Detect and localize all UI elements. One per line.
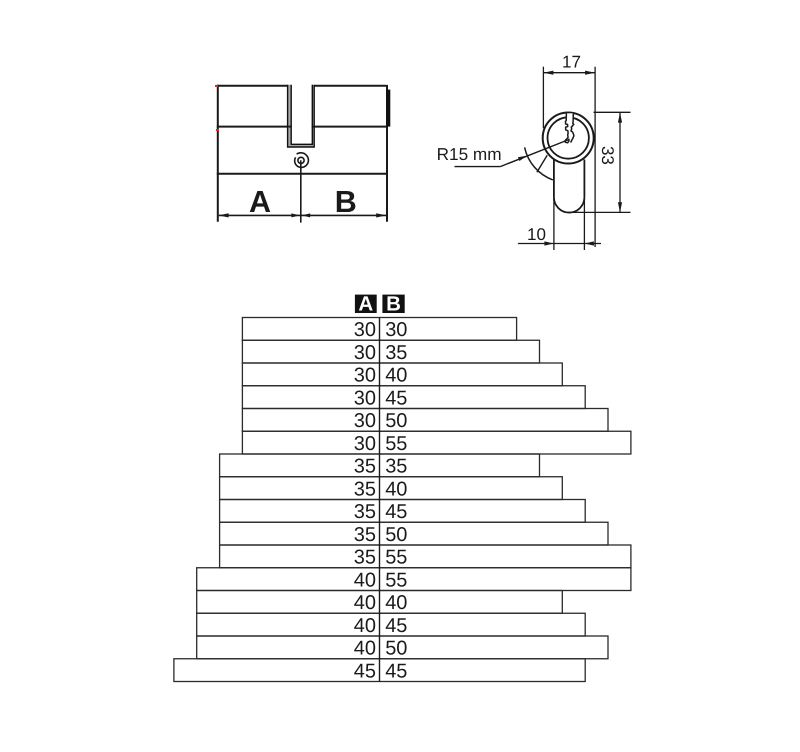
svg-text:30: 30 [354,342,376,364]
svg-text:40: 40 [354,615,376,637]
svg-text:17: 17 [562,53,581,72]
svg-text:35: 35 [385,342,407,364]
svg-text:55: 55 [385,547,407,569]
svg-text:45: 45 [385,660,407,682]
svg-text:30: 30 [354,365,376,387]
svg-text:35: 35 [385,456,407,478]
svg-text:55: 55 [385,569,407,591]
svg-text:55: 55 [385,433,407,455]
svg-text:A: A [249,185,271,219]
svg-text:50: 50 [385,638,407,660]
svg-text:R15 mm: R15 mm [437,144,502,164]
svg-text:35: 35 [354,456,376,478]
svg-text:30: 30 [354,410,376,432]
svg-text:35: 35 [354,501,376,523]
svg-text:33: 33 [598,146,617,165]
svg-text:30: 30 [354,319,376,341]
svg-text:10: 10 [527,225,546,244]
svg-text:50: 50 [385,524,407,546]
svg-text:40: 40 [385,478,407,500]
svg-text:45: 45 [354,660,376,682]
svg-text:30: 30 [354,387,376,409]
svg-text:45: 45 [385,501,407,523]
svg-text:35: 35 [354,478,376,500]
svg-text:35: 35 [354,524,376,546]
svg-text:50: 50 [385,410,407,432]
svg-text:B: B [386,293,401,316]
svg-text:A: A [358,293,373,316]
svg-text:30: 30 [354,433,376,455]
svg-text:B: B [335,185,357,219]
svg-text:30: 30 [385,319,407,341]
svg-text:40: 40 [354,592,376,614]
svg-text:40: 40 [354,638,376,660]
svg-text:45: 45 [385,615,407,637]
svg-text:35: 35 [354,547,376,569]
svg-text:45: 45 [385,387,407,409]
svg-text:40: 40 [385,592,407,614]
svg-text:40: 40 [354,569,376,591]
svg-text:40: 40 [385,365,407,387]
